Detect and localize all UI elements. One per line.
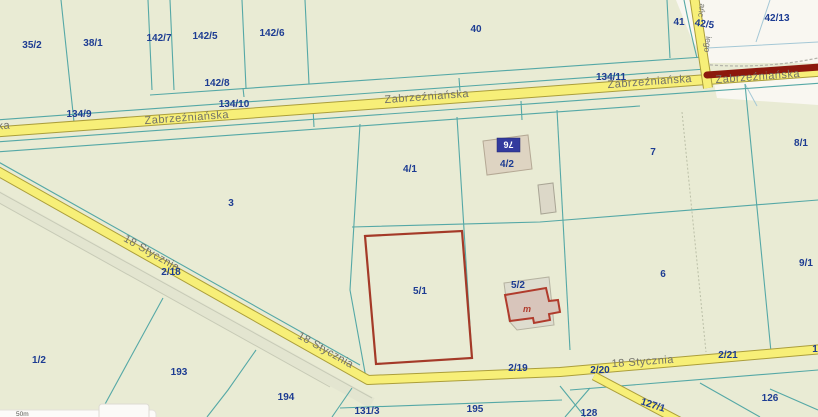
parcel-number-label: 41 xyxy=(673,17,685,28)
scale-label: 50m xyxy=(16,411,29,417)
parcel-number-label: 134/10 xyxy=(219,99,250,110)
map-background xyxy=(0,0,818,417)
address-plate: 76 xyxy=(497,138,520,152)
parcel-number-label: 4/2 xyxy=(500,159,514,170)
parcel-number-label: 40 xyxy=(470,24,482,35)
parcel-number-label: 2/19 xyxy=(508,363,528,374)
parcel-number-label: 142/7 xyxy=(146,33,171,44)
parcel-number-label: 38/1 xyxy=(83,38,103,49)
map-widget-button[interactable] xyxy=(99,404,149,417)
parcel-number-label: 134/9 xyxy=(66,109,91,120)
parcel-number-label: 128 xyxy=(581,408,598,417)
parcel-number-label: 142/8 xyxy=(204,78,229,89)
parcel-number-label: 1 xyxy=(812,344,818,355)
parcel-number-label: 193 xyxy=(171,367,188,378)
street-name-label: ańc xyxy=(696,3,708,19)
parcel-number-label: 8/1 xyxy=(794,138,808,149)
parcel-number-label: 131/3 xyxy=(354,406,379,417)
parcel-number-label: 195 xyxy=(467,404,484,415)
street-name-label: iego xyxy=(702,36,714,53)
parcel-number-label: 35/2 xyxy=(22,40,42,51)
parcel-number-label: 1/2 xyxy=(32,355,46,366)
parcel-number-label: 142/5 xyxy=(192,31,217,42)
parcel-number-label: 7 xyxy=(650,147,656,158)
parcel-number-label: 2/21 xyxy=(718,350,738,361)
parcel-number-label: 3 xyxy=(228,198,234,209)
small-building xyxy=(538,183,556,214)
map-canvas[interactable]: 76 m ZabrzeźniańskaZabrzeźniańskaZabrzeź… xyxy=(0,0,818,417)
parcel-number-label: 2/18 xyxy=(161,267,181,278)
parcel-number-label: 126 xyxy=(762,393,779,404)
parcel-number-label: 9/1 xyxy=(799,258,813,269)
building-5-2-letter: m xyxy=(523,304,531,314)
map-viewport[interactable]: 76 m ZabrzeźniańskaZabrzeźniańskaZabrzeź… xyxy=(0,0,818,417)
parcel-number-label: 194 xyxy=(278,392,295,403)
parcel-number-label: 4/1 xyxy=(403,164,417,175)
parcel-number-label: 2/20 xyxy=(590,365,610,376)
parcel-number-label: 5/1 xyxy=(413,286,427,297)
parcel-number-label: 42/13 xyxy=(764,13,789,24)
parcel-number-label: 142/6 xyxy=(259,28,284,39)
parcel-number-label: 5/2 xyxy=(511,280,525,291)
parcel-number-label: 6 xyxy=(660,269,666,280)
address-plate-number: 76 xyxy=(503,140,513,150)
parcel-number-label: 134/11 xyxy=(596,72,626,83)
street-name-label: ka xyxy=(0,120,11,133)
